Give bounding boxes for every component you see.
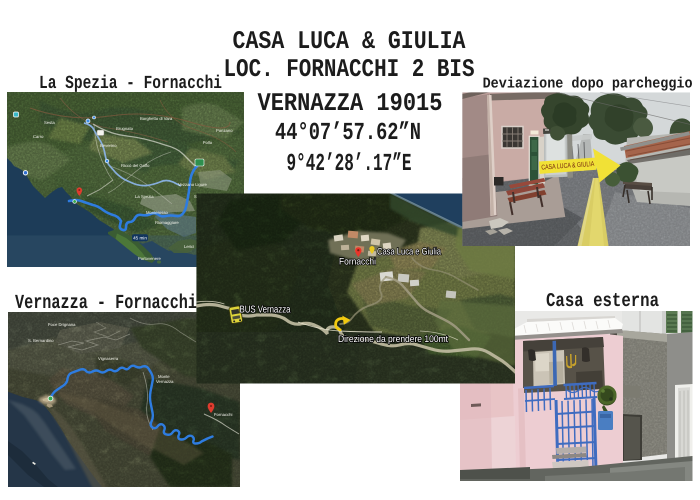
svg-text:Sesta: Sesta <box>44 120 55 125</box>
svg-text:Beverino: Beverino <box>100 143 117 148</box>
svg-text:Fornacchi: Fornacchi <box>214 412 232 417</box>
svg-text:Brugnato: Brugnato <box>116 126 134 131</box>
svg-text:CASA LUCA & GIULIA: CASA LUCA & GIULIA <box>233 27 467 56</box>
svg-text:Ponzano: Ponzano <box>216 128 233 133</box>
svg-text:9°42’28’.17”E: 9°42’28’.17”E <box>287 151 412 178</box>
svg-text:Casa Luca e Giulia: Casa Luca e Giulia <box>377 246 442 257</box>
svg-text:Riccò del Golfo: Riccò del Golfo <box>121 163 150 168</box>
svg-text:Monterosso: Monterosso <box>146 210 169 215</box>
svg-text:LOC. FORNACCHI 2 BIS: LOC. FORNACCHI 2 BIS <box>224 55 475 84</box>
svg-text:Vignaserra: Vignaserra <box>98 356 119 361</box>
svg-text:Vernazza: Vernazza <box>156 379 174 384</box>
svg-text:S. Bernardino: S. Bernardino <box>28 338 54 343</box>
svg-text:Deviazione dopo parcheggio: Deviazione dopo parcheggio <box>483 76 693 93</box>
svg-text:45 min: 45 min <box>133 236 147 241</box>
svg-text:Vezzano Ligure: Vezzano Ligure <box>178 182 208 187</box>
svg-text:Foce Drignana: Foce Drignana <box>48 322 76 327</box>
svg-text:VERNAZZA 19015: VERNAZZA 19015 <box>258 89 443 118</box>
svg-text:Follo: Follo <box>203 140 213 145</box>
svg-text:Lerici: Lerici <box>184 244 194 249</box>
svg-text:Portovenere: Portovenere <box>138 256 161 261</box>
svg-text:Carro: Carro <box>33 134 44 139</box>
svg-text:Fornacchi: Fornacchi <box>339 257 376 268</box>
svg-text:Casa esterna: Casa esterna <box>546 290 659 312</box>
svg-text:Riomaggiore: Riomaggiore <box>155 220 179 225</box>
svg-text:BUS Vernazza: BUS Vernazza <box>240 305 291 316</box>
svg-text:Borghetto di Vara: Borghetto di Vara <box>140 116 173 121</box>
svg-text:La Spezia: La Spezia <box>135 194 154 199</box>
svg-text:Vernazza - Fornacchi: Vernazza - Fornacchi <box>15 292 197 315</box>
svg-text:Direzione da prendere 100mt: Direzione da prendere 100mt <box>338 334 448 345</box>
svg-text:44°07’57.62”N: 44°07’57.62”N <box>275 120 421 147</box>
svg-text:La Spezia - Fornacchi: La Spezia - Fornacchi <box>39 73 222 94</box>
